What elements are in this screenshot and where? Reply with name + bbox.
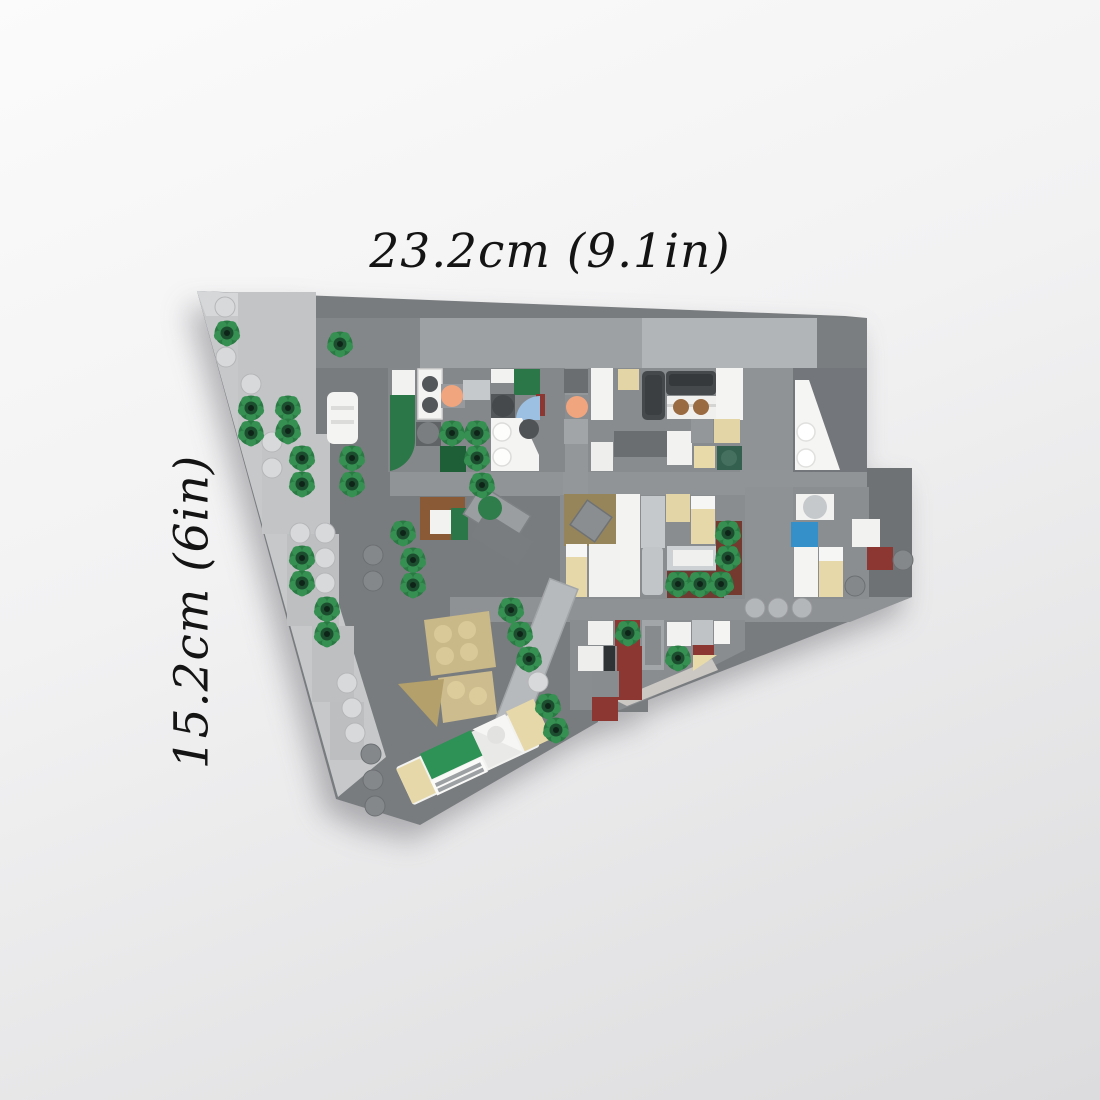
shrub-green xyxy=(478,496,502,520)
tile-white xyxy=(714,621,730,644)
stud-gray-large xyxy=(803,495,827,519)
product-dimension-image: 23.2cm (9.1in) 15.2cm (6in) xyxy=(0,0,1100,1100)
tile-tan xyxy=(714,419,740,443)
tile-lightgray xyxy=(692,620,713,645)
stud-tan xyxy=(469,687,487,705)
stud-white xyxy=(797,449,815,467)
stud-tan xyxy=(434,625,452,643)
stud-light xyxy=(216,347,236,367)
chair-dark xyxy=(519,419,539,439)
height-dimension-label: 15.2cm (6in) xyxy=(165,455,220,769)
plates-top-right xyxy=(642,318,817,370)
tile-white xyxy=(852,519,880,547)
tile-maroon xyxy=(867,547,893,570)
stud-dark xyxy=(893,550,913,570)
bench-slat xyxy=(331,406,354,410)
stud-light xyxy=(290,523,310,543)
stud-light xyxy=(315,523,335,543)
stud-white xyxy=(493,423,511,441)
stud-white xyxy=(797,423,815,441)
stud-light xyxy=(337,673,357,693)
tile-white xyxy=(430,510,451,534)
tile-blue xyxy=(791,522,818,547)
bed-white xyxy=(794,547,818,597)
chair-dark xyxy=(492,395,514,417)
sofa-cushion xyxy=(669,374,713,386)
wall-maroon xyxy=(617,646,642,700)
appliance-drum xyxy=(422,376,438,392)
road-top xyxy=(420,318,642,368)
tile-dark xyxy=(564,369,588,393)
tile-gray xyxy=(592,671,619,697)
tile-tan xyxy=(618,369,639,390)
stud-light xyxy=(215,297,235,317)
stud-light xyxy=(241,374,261,394)
bed-pillow xyxy=(566,544,587,557)
sofa-cushion xyxy=(645,375,662,415)
block-top-right-dark xyxy=(817,318,867,370)
stud-light xyxy=(315,573,335,593)
tile-white xyxy=(667,431,692,465)
deck-tan xyxy=(424,611,496,676)
door-panel xyxy=(645,626,661,665)
stud-dark xyxy=(845,576,865,596)
stud-tan xyxy=(460,643,478,661)
table-peach xyxy=(441,385,463,407)
stud-dark xyxy=(363,545,383,565)
step-maroon xyxy=(592,697,618,721)
tile-white xyxy=(589,544,620,597)
stud-dark xyxy=(365,796,385,816)
tile-white xyxy=(667,622,691,646)
cabinet-white xyxy=(392,370,415,395)
stud-light xyxy=(342,698,362,718)
cabinet-lightgray xyxy=(641,496,665,548)
tile-black-sliver xyxy=(604,646,615,672)
width-dimension-label: 23.2cm (9.1in) xyxy=(0,224,1100,279)
table-peach xyxy=(566,396,588,418)
stud-dark xyxy=(361,744,381,764)
stud-tan xyxy=(447,681,465,699)
tile-white xyxy=(588,621,613,645)
counter-white xyxy=(591,442,613,471)
tile-darkgreen xyxy=(440,446,466,472)
stud-light xyxy=(528,672,548,692)
lounge-inner xyxy=(673,550,713,566)
tile-maroon-sliver xyxy=(693,645,714,655)
stud-tan xyxy=(436,647,454,665)
tile-white xyxy=(578,646,603,671)
stud-light xyxy=(315,548,335,568)
bed-pillow xyxy=(819,547,843,561)
plant-pot-circle xyxy=(721,450,737,466)
lego-build xyxy=(197,291,913,825)
stud-road xyxy=(792,598,812,618)
deck-tan xyxy=(438,671,497,723)
counter-white xyxy=(591,368,613,420)
stud-road xyxy=(745,598,765,618)
bed-pillow xyxy=(691,496,715,509)
counter-white-top xyxy=(491,369,515,383)
tile-green xyxy=(514,369,540,395)
seat-wood xyxy=(693,399,709,415)
tile-tan xyxy=(694,446,715,468)
stud-tan xyxy=(458,621,476,639)
stud-dark xyxy=(363,571,383,591)
street-right-lower xyxy=(745,487,793,600)
seat-wood xyxy=(673,399,689,415)
stud-road xyxy=(768,598,788,618)
bench-slat xyxy=(331,420,354,424)
tile-gray xyxy=(691,419,713,443)
tile-tan xyxy=(666,494,690,522)
stool-gray xyxy=(417,422,439,444)
appliance-drum xyxy=(422,397,438,413)
tile-gray xyxy=(564,419,588,444)
wardrobe-white xyxy=(716,368,743,420)
stud-white xyxy=(493,448,511,466)
couch-gray xyxy=(642,547,663,595)
stud-dark xyxy=(363,770,383,790)
bench-white xyxy=(327,392,358,444)
stud-light xyxy=(345,723,365,743)
tile-lightgray xyxy=(463,380,490,400)
stud-light xyxy=(262,458,282,478)
